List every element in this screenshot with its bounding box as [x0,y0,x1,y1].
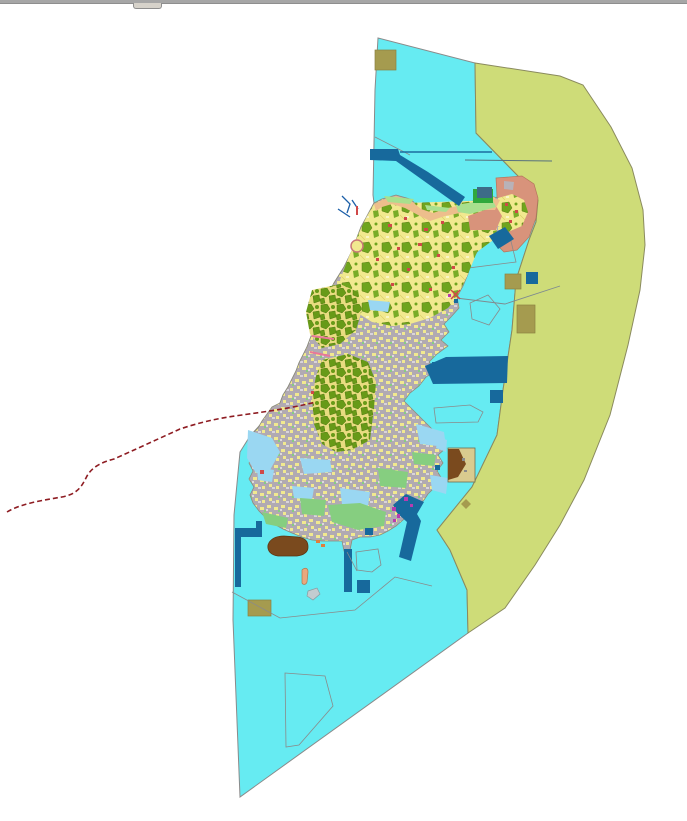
khaki-square-top [375,50,396,70]
islet-peach [302,568,308,584]
stream-lines-nw [338,196,358,217]
red-tick-nw [356,206,358,215]
khaki-square-small-east [505,274,521,289]
salmon-gray-parcel [504,181,514,190]
window-top-border [0,0,687,4]
ring-landmark-west [351,240,363,252]
harbor-square-southeast [490,390,503,403]
splitter-handle[interactable] [133,3,162,9]
slate-square-ne [477,187,492,198]
harbor-bar-south [344,549,352,592]
harbor-square-east [526,272,538,284]
map-canvas[interactable] [0,0,687,821]
khaki-square-east [517,305,535,333]
forest-cluster-central [312,354,376,452]
harbor-square-south [357,580,370,593]
brown-landfill [268,536,308,556]
